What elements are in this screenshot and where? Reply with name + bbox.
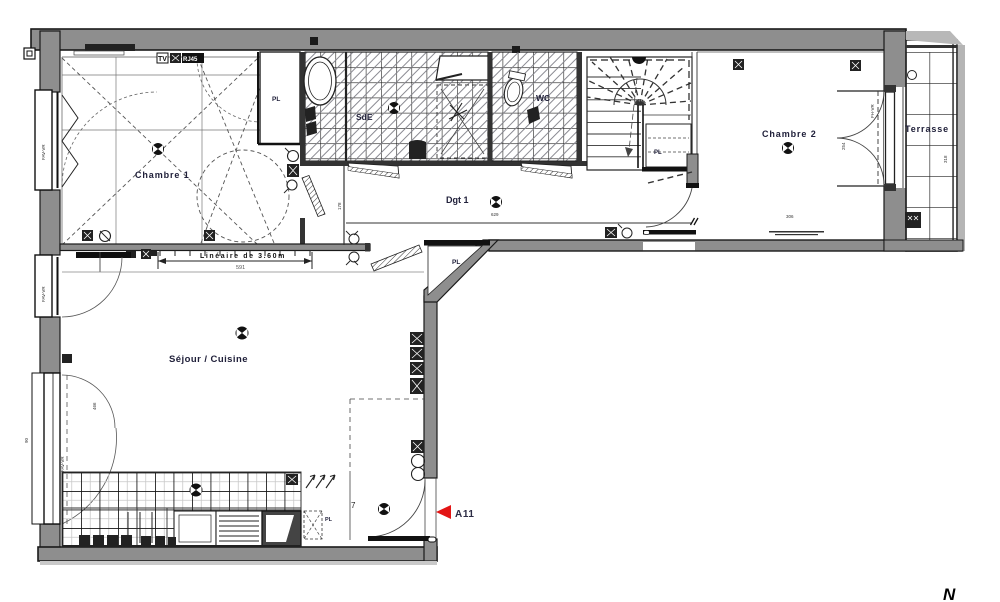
svg-text:Séjour / Cuisine: Séjour / Cuisine <box>169 354 248 365</box>
svg-text:318: 318 <box>943 155 948 163</box>
svg-text:WC: WC <box>536 93 550 103</box>
svg-text:FAV-VR: FAV-VR <box>41 144 46 160</box>
svg-text:7: 7 <box>351 501 356 510</box>
svg-text:Linéaire de 3.60m: Linéaire de 3.60m <box>200 253 286 260</box>
svg-text:178: 178 <box>337 202 342 210</box>
svg-text:PL: PL <box>272 96 280 103</box>
svg-text:N: N <box>943 585 956 602</box>
svg-text:591: 591 <box>236 265 245 271</box>
svg-text:90: 90 <box>24 437 29 443</box>
svg-text:Chambre 1: Chambre 1 <box>135 170 190 180</box>
svg-text:A11: A11 <box>455 509 475 520</box>
svg-text:629: 629 <box>491 212 499 217</box>
svg-text:Chambre 2: Chambre 2 <box>762 129 817 139</box>
svg-text:PL: PL <box>452 259 460 266</box>
svg-text:FH-VR: FH-VR <box>870 104 875 118</box>
svg-text:PL: PL <box>654 150 662 156</box>
svg-text:SdE: SdE <box>356 112 373 122</box>
svg-text:Terrasse: Terrasse <box>905 124 949 134</box>
svg-text:254: 254 <box>841 142 846 150</box>
svg-text:TV: TV <box>158 56 167 63</box>
svg-text:306: 306 <box>786 214 794 219</box>
svg-text:PL: PL <box>325 517 333 523</box>
svg-text:FAV-VR: FAV-VR <box>60 456 65 472</box>
svg-text:FAV-VR: FAV-VR <box>41 286 46 302</box>
svg-text:Dgt 1: Dgt 1 <box>446 195 469 205</box>
svg-text:RJ45: RJ45 <box>183 57 198 63</box>
svg-text:466: 466 <box>92 402 97 410</box>
